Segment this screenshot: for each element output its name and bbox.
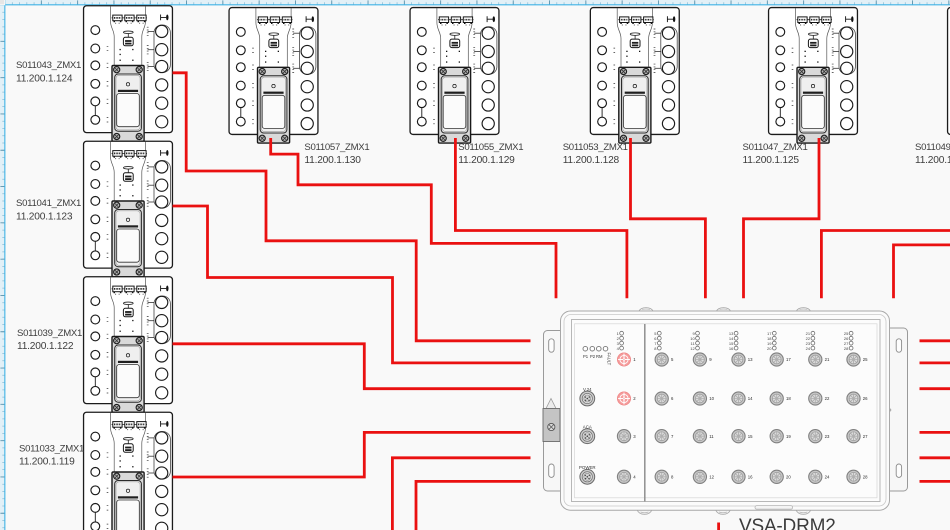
svg-text:11.200.1.129: 11.200.1.129: [458, 155, 515, 166]
svg-text:14: 14: [748, 396, 753, 401]
svg-text:S011055_ZMX1: S011055_ZMX1: [458, 142, 523, 153]
svg-text:11.200.1.124: 11.200.1.124: [16, 73, 73, 84]
svg-text:24: 24: [806, 346, 811, 351]
svg-text:11.200.1.128: 11.200.1.128: [563, 155, 620, 166]
svg-text:28: 28: [844, 346, 849, 351]
svg-text:12: 12: [709, 475, 714, 480]
svg-text:11.200.1.130: 11.200.1.130: [304, 155, 361, 166]
svg-text:19: 19: [786, 434, 791, 439]
svg-text:11.200.1.125: 11.200.1.125: [743, 155, 800, 166]
svg-text:12: 12: [690, 346, 695, 351]
svg-text:26: 26: [863, 396, 868, 401]
svg-text:16: 16: [729, 346, 734, 351]
svg-text:25: 25: [863, 357, 868, 362]
svg-text:P2: P2: [590, 354, 596, 359]
svg-text:21: 21: [825, 357, 830, 362]
svg-text:POWER: POWER: [579, 465, 596, 470]
svg-text:P1: P1: [583, 354, 589, 359]
svg-text:11.200.1.119: 11.200.1.119: [19, 457, 75, 468]
svg-text:S011053_ZMX1: S011053_ZMX1: [563, 142, 628, 153]
svg-text:16: 16: [748, 475, 753, 480]
svg-text:18: 18: [786, 396, 791, 401]
svg-text:10: 10: [709, 396, 714, 401]
svg-text:S011047_ZMX1: S011047_ZMX1: [743, 142, 808, 153]
svg-text:11.200.1.126: 11.200.1.126: [915, 155, 950, 166]
svg-text:28: 28: [863, 475, 868, 480]
svg-text:11.200.1.123: 11.200.1.123: [16, 211, 73, 222]
svg-text:ACA: ACA: [583, 425, 592, 430]
svg-text:24: 24: [825, 475, 830, 480]
svg-text:S011039_ZMX1: S011039_ZMX1: [17, 328, 82, 339]
svg-text:27: 27: [863, 434, 868, 439]
svg-text:S011057_ZMX1: S011057_ZMX1: [304, 142, 369, 153]
svg-text:VSA-DRM2: VSA-DRM2: [739, 516, 836, 530]
svg-text:S011041_ZMX1: S011041_ZMX1: [16, 198, 81, 209]
svg-text:11.200.1.122: 11.200.1.122: [17, 341, 74, 352]
svg-text:23: 23: [825, 434, 830, 439]
svg-text:V.24: V.24: [583, 387, 592, 392]
svg-text:S011043_ZMX1: S011043_ZMX1: [16, 60, 81, 71]
svg-text:20: 20: [767, 346, 772, 351]
svg-text:20: 20: [786, 475, 791, 480]
svg-text:11: 11: [709, 434, 714, 439]
svg-text:FAULT: FAULT: [606, 353, 611, 366]
svg-text:RM: RM: [596, 354, 603, 359]
svg-text:S011049_ZMX1: S011049_ZMX1: [915, 142, 950, 153]
svg-text:17: 17: [786, 357, 791, 362]
svg-text:22: 22: [825, 396, 830, 401]
svg-text:13: 13: [748, 357, 753, 362]
svg-text:S011033_ZMX1: S011033_ZMX1: [19, 444, 84, 455]
svg-text:15: 15: [748, 434, 753, 439]
